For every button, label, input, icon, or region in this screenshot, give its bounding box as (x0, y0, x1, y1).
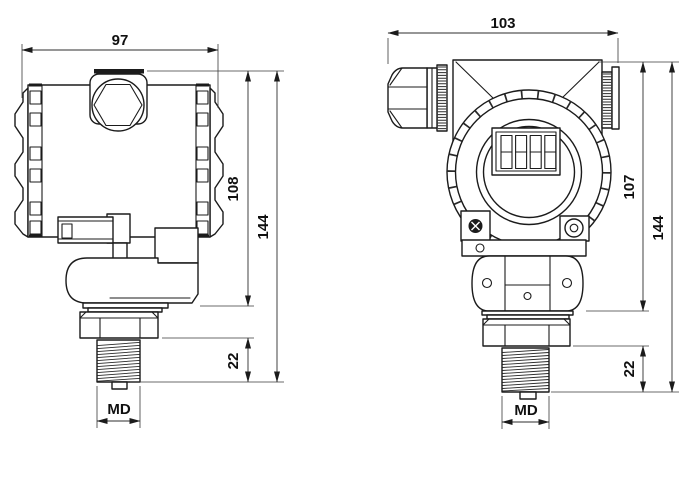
sensor-barrel-front (472, 256, 583, 319)
plug-cap (612, 67, 619, 129)
dim-side-thread-diameter: MD (107, 401, 130, 418)
dim-front-thread-diameter: MD (514, 402, 537, 419)
dim-side-thread-length: 22 (225, 353, 242, 370)
dim-front-width: 103 (490, 15, 515, 32)
sensor-barrel-side (66, 258, 198, 303)
thread-nub (112, 382, 127, 389)
front-view: 103 107 22 144 MD (388, 15, 679, 429)
dim-front-thread-length: 22 (621, 361, 638, 378)
hex-nut (80, 312, 158, 338)
dim-side-width: 97 (112, 32, 129, 49)
blind-plug (602, 67, 619, 129)
drawing-canvas: 97 108 22 144 MD (0, 0, 700, 478)
cable-gland (388, 65, 447, 131)
base-plate (462, 240, 586, 256)
plug-cap-seal (94, 69, 144, 74)
gland-hex-dome (388, 68, 427, 128)
process-thread-front (502, 348, 549, 399)
right-serrated-edge (210, 88, 223, 237)
dimension-drawing: 97 108 22 144 MD (0, 0, 700, 478)
vent-plug (90, 69, 147, 131)
plug-knurl (602, 72, 612, 128)
hex-nut-front (483, 319, 570, 346)
dim-front-body-height: 107 (621, 174, 638, 199)
thread-nub-front (520, 392, 536, 399)
left-serrated-edge (15, 88, 28, 237)
bracket-eye (565, 219, 583, 237)
dim-front-total-height: 144 (650, 215, 667, 241)
lcd-display (492, 128, 560, 175)
dim-side-total-height: 144 (255, 214, 272, 240)
dim-side-body-height: 108 (225, 176, 242, 201)
terminal-connector (58, 214, 130, 243)
side-view: 97 108 22 144 MD (15, 32, 284, 428)
